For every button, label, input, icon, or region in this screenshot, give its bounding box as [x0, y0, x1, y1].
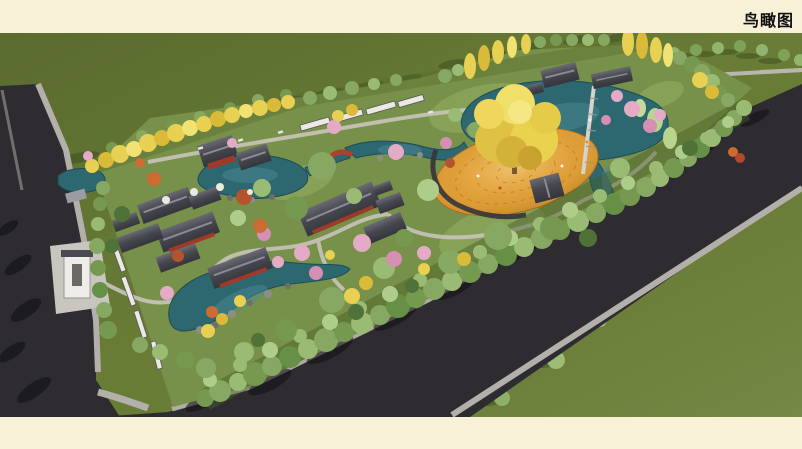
header-band	[0, 0, 802, 33]
footer-band	[0, 417, 802, 449]
presentation-slide: 鸟瞰图	[0, 0, 802, 449]
north-road-stub	[760, 70, 802, 72]
bird-eye-render	[0, 0, 802, 449]
page-title: 鸟瞰图	[743, 7, 794, 31]
